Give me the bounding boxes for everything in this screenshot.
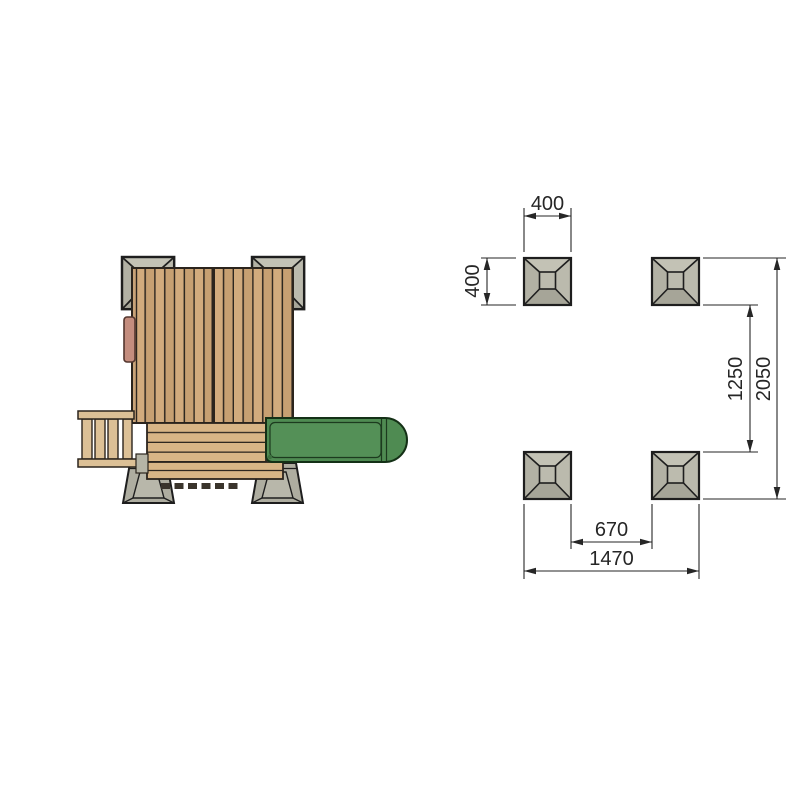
- foundation-pad-bottom-right: [652, 452, 699, 499]
- foundation-pad-bottom-left: [524, 452, 571, 499]
- slide-corner-notch: [268, 455, 272, 459]
- foundation-pad-top-left: [524, 258, 571, 305]
- slide: [266, 418, 407, 462]
- foundation-diagram: 400 400 1250 2050 670 1470: [462, 193, 786, 579]
- deck-planks: [147, 423, 283, 479]
- foundation-pad-top-right: [652, 258, 699, 305]
- dimension-pad-depth: [481, 258, 516, 305]
- dim-label-overall-width: 1470: [589, 548, 634, 570]
- roof-planks: [132, 268, 293, 423]
- installation-plan-svg: 400 400 1250 2050 670 1470: [0, 0, 800, 800]
- door: [124, 317, 135, 362]
- dim-label-inner-vertical: 1250: [725, 357, 747, 402]
- drawing-page: 400 400 1250 2050 670 1470: [0, 0, 800, 800]
- access-ladder: [78, 411, 138, 467]
- dim-label-inner-horizontal: 670: [595, 519, 628, 541]
- deck-joist-ends: [161, 483, 238, 489]
- concrete-block: [136, 454, 148, 473]
- dim-label-pad-width: 400: [531, 193, 564, 215]
- plan-view: [78, 257, 407, 503]
- dim-label-overall-depth: 2050: [753, 357, 775, 402]
- dim-label-pad-depth: 400: [462, 264, 484, 297]
